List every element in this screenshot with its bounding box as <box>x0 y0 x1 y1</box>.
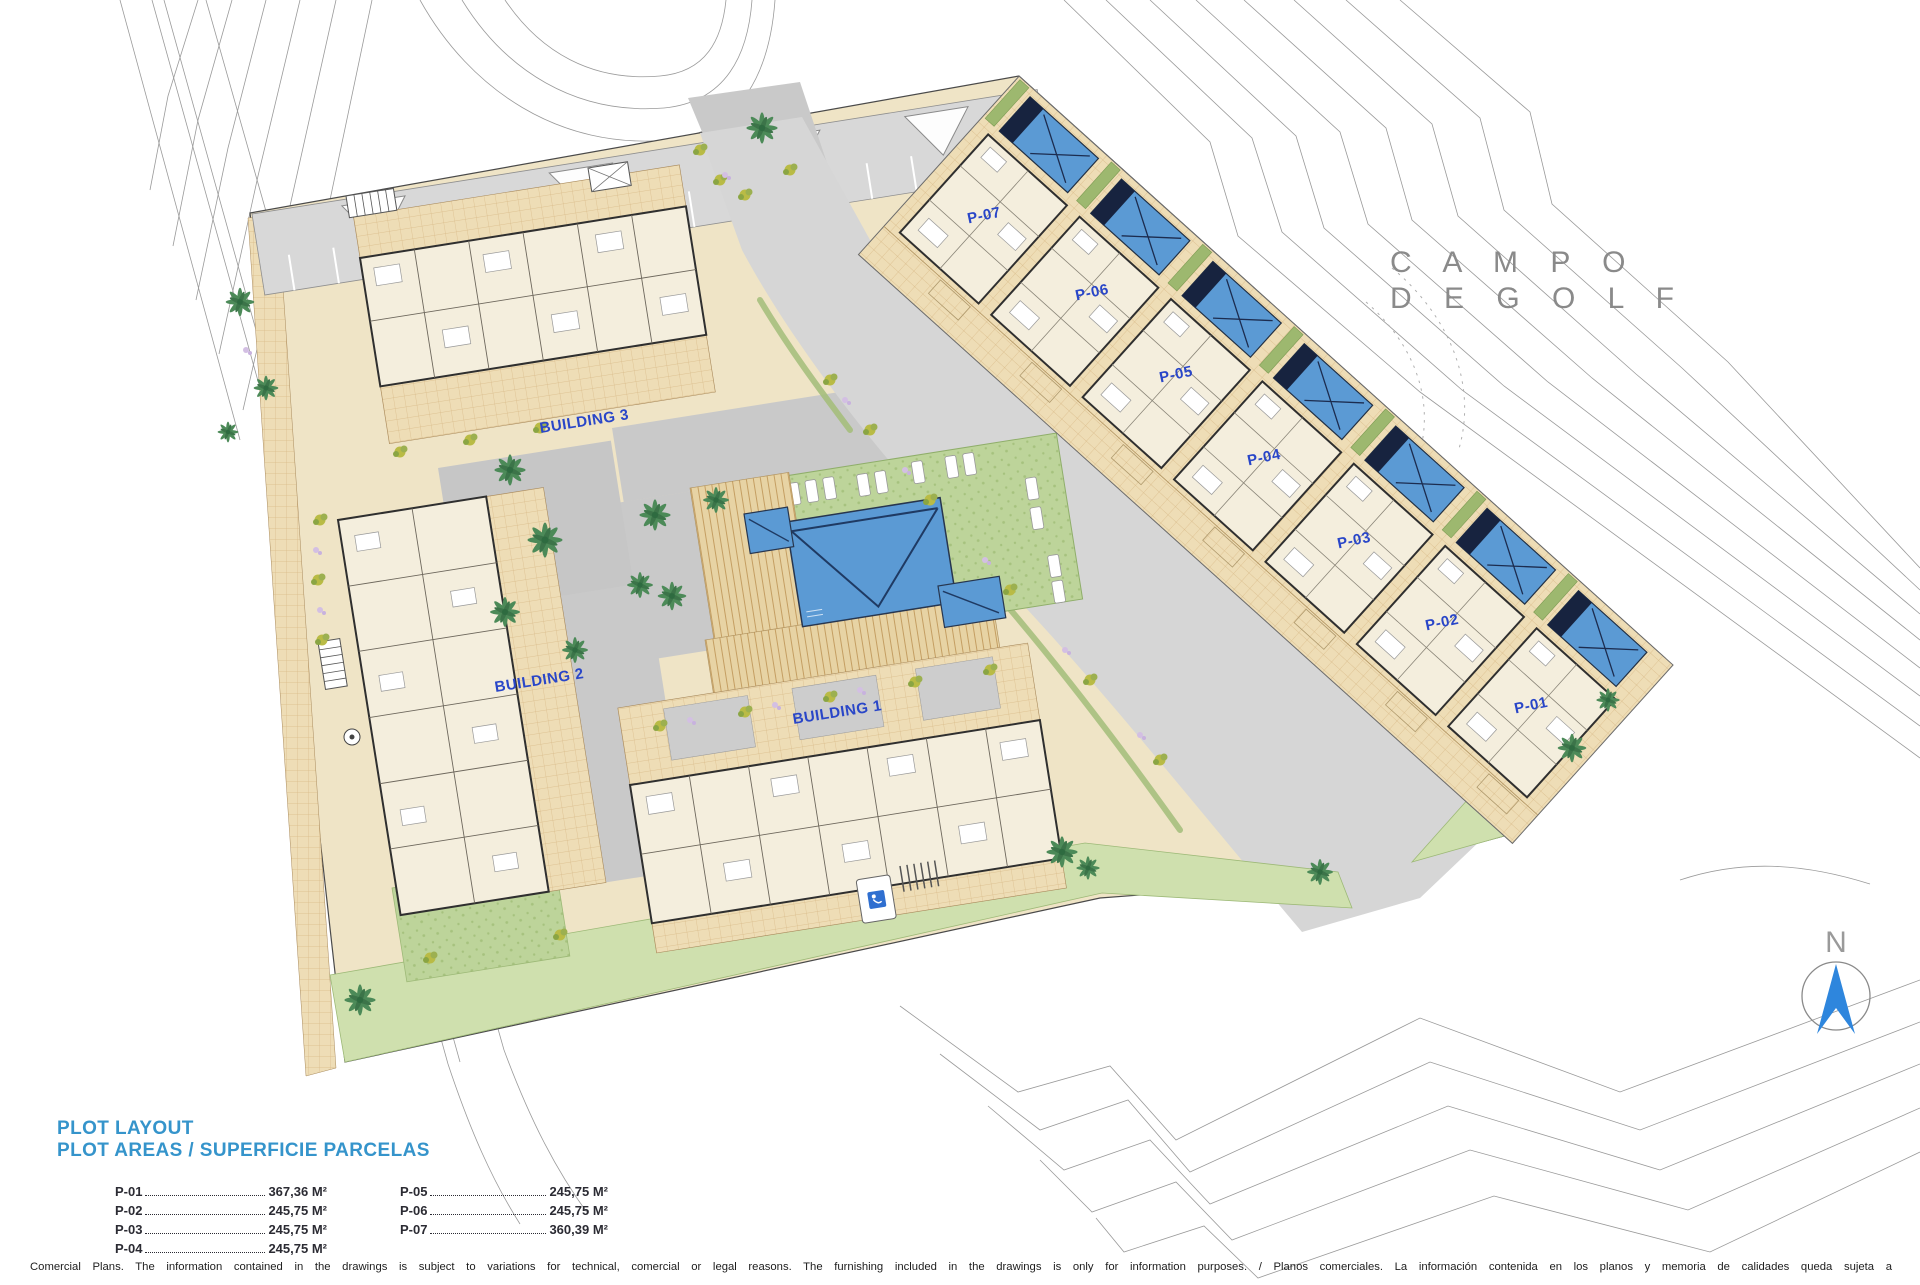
spa-pool <box>938 576 1006 627</box>
golf-label-line1: C A M P O <box>1390 246 1638 279</box>
legend-row: P-04 245,75 M² <box>115 1237 327 1256</box>
north-arrow: N <box>1802 926 1870 1034</box>
disclaimer-text: Comercial Plans. The information contain… <box>30 1261 1892 1273</box>
legend-row: P-02 245,75 M² <box>115 1199 327 1218</box>
legend-plot-id: P-03 <box>115 1222 142 1237</box>
legend-plot-area: 245,75 M² <box>549 1184 608 1199</box>
legend-plot-area: 367,36 M² <box>268 1184 327 1199</box>
legend-column-2: P-05 245,75 M² P-06 245,75 M² P-07 360,3… <box>400 1180 608 1237</box>
plot-legend: PLOT LAYOUT PLOT AREAS / SUPERFICIE PARC… <box>57 1118 430 1162</box>
legend-title-2: PLOT AREAS / SUPERFICIE PARCELAS <box>57 1140 430 1162</box>
accessible-parking-icon <box>856 875 896 924</box>
legend-plot-area: 245,75 M² <box>268 1203 327 1218</box>
legend-plot-id: P-06 <box>400 1203 427 1218</box>
legend-plot-area: 245,75 M² <box>268 1222 327 1237</box>
legend-row: P-06 245,75 M² <box>400 1199 608 1218</box>
legend-column-1: P-01 367,36 M² P-02 245,75 M² P-03 245,7… <box>115 1180 327 1256</box>
legend-plot-id: P-07 <box>400 1222 427 1237</box>
golf-label-line2: D E G O L F <box>1390 282 1686 315</box>
legend-plot-id: P-05 <box>400 1184 427 1199</box>
lamp-icon <box>344 729 360 745</box>
legend-row: P-05 245,75 M² <box>400 1180 608 1199</box>
legend-row: P-07 360,39 M² <box>400 1218 608 1237</box>
kids-pool <box>744 507 794 553</box>
leader-dots <box>430 1195 546 1196</box>
legend-row: P-01 367,36 M² <box>115 1180 327 1199</box>
legend-plot-id: P-04 <box>115 1241 142 1256</box>
legend-plot-area: 245,75 M² <box>268 1241 327 1256</box>
leader-dots <box>145 1214 265 1215</box>
leader-dots <box>145 1233 265 1234</box>
leader-dots <box>430 1233 546 1234</box>
legend-plot-area: 360,39 M² <box>549 1222 608 1237</box>
legend-row: P-03 245,75 M² <box>115 1218 327 1237</box>
golf-course-label: C A M P O D E G O L F <box>1390 246 1686 315</box>
legend-plot-id: P-02 <box>115 1203 142 1218</box>
legend-plot-area: 245,75 M² <box>549 1203 608 1218</box>
north-arrow-icon <box>1817 964 1855 1034</box>
legend-plot-id: P-01 <box>115 1184 142 1199</box>
leader-dots <box>145 1195 265 1196</box>
legend-title-1: PLOT LAYOUT <box>57 1118 430 1140</box>
leader-dots <box>145 1252 265 1253</box>
leader-dots <box>430 1214 546 1215</box>
north-label: N <box>1825 926 1847 959</box>
site-plan: BUILDING 3 BUILDING 2 BUILDING 1 P-07 P-… <box>0 0 1920 1280</box>
site-plan-canvas: BUILDING 3 BUILDING 2 BUILDING 1 P-07 P-… <box>0 0 1920 1280</box>
